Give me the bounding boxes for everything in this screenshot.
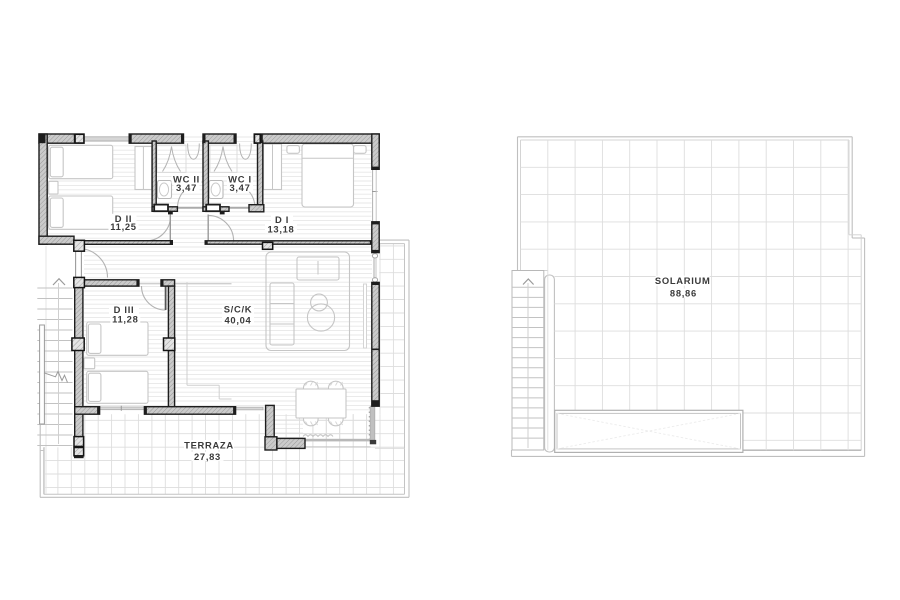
svg-text:13,18: 13,18 <box>268 223 295 234</box>
svg-text:TERRAZA: TERRAZA <box>184 440 234 451</box>
svg-text:88,86: 88,86 <box>670 287 697 298</box>
svg-text:3,47: 3,47 <box>229 182 250 193</box>
svg-text:SOLARIUM: SOLARIUM <box>655 275 711 286</box>
svg-text:11,28: 11,28 <box>112 314 138 325</box>
svg-text:27,83: 27,83 <box>194 451 221 462</box>
svg-text:3,47: 3,47 <box>176 182 197 193</box>
svg-text:40,04: 40,04 <box>225 315 252 326</box>
svg-text:11,25: 11,25 <box>110 221 136 232</box>
svg-text:S/C/K: S/C/K <box>224 303 253 314</box>
